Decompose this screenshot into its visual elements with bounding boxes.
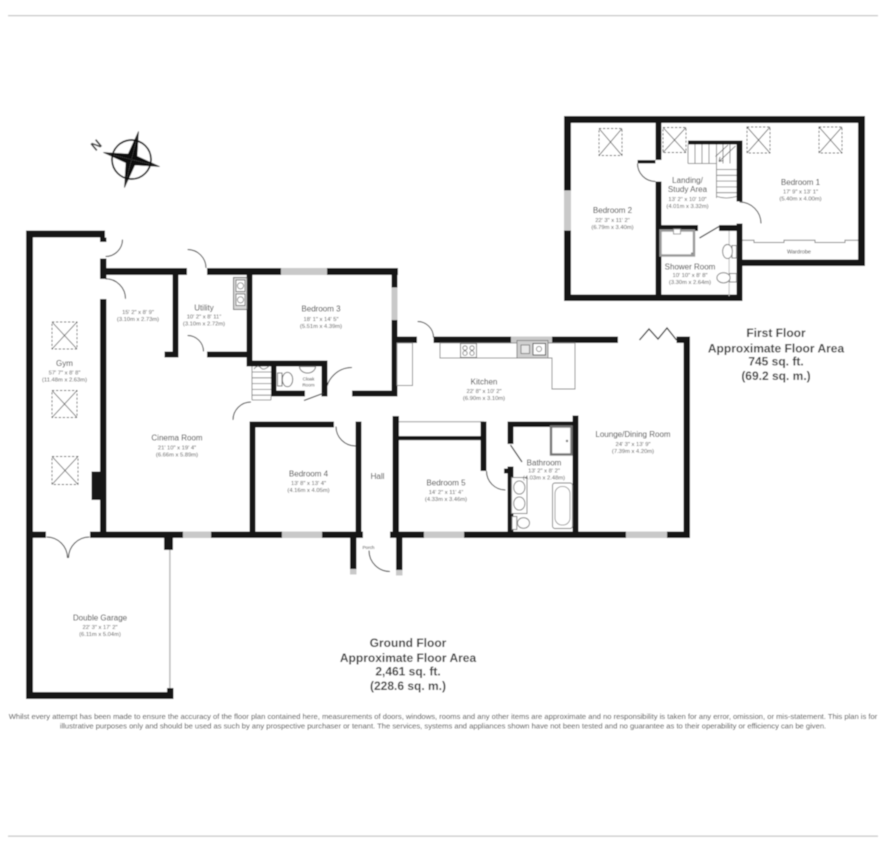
svg-text:Shower Room: Shower Room [665, 263, 716, 272]
svg-text:24' 3" x 13' 9": 24' 3" x 13' 9" [615, 442, 650, 448]
svg-text:Bedroom 1: Bedroom 1 [781, 178, 821, 187]
svg-text:First Floor: First Floor [746, 326, 806, 340]
svg-text:13' 2" x 8' 2": 13' 2" x 8' 2" [528, 469, 560, 475]
svg-text:14' 2" x 11' 4": 14' 2" x 11' 4" [429, 490, 464, 496]
svg-text:(3.10m x 2.73m): (3.10m x 2.73m) [117, 317, 159, 323]
svg-text:21' 10" x 19' 4": 21' 10" x 19' 4" [158, 446, 196, 452]
svg-text:Bedroom 3: Bedroom 3 [301, 305, 341, 314]
svg-text:Utility: Utility [194, 304, 214, 313]
svg-text:18' 1" x 14' 5": 18' 1" x 14' 5" [303, 317, 338, 323]
svg-text:745 sq. ft.: 745 sq. ft. [748, 355, 803, 369]
svg-text:15' 2" x 8' 9": 15' 2" x 8' 9" [122, 310, 154, 316]
svg-text:(6.79m x 3.40m): (6.79m x 3.40m) [591, 225, 633, 231]
svg-text:22' 3" x 11' 2": 22' 3" x 11' 2" [595, 218, 630, 224]
svg-text:Hall: Hall [371, 472, 385, 481]
svg-text:Landing/: Landing/ [672, 176, 703, 185]
svg-text:illustrative purposes only and: illustrative purposes only and should be… [60, 722, 826, 731]
svg-text:Porch: Porch [362, 545, 374, 550]
svg-text:2,461 sq. ft.: 2,461 sq. ft. [375, 665, 440, 679]
svg-text:(3.10m x 2.72m): (3.10m x 2.72m) [183, 322, 225, 328]
svg-text:Ground Floor: Ground Floor [370, 636, 447, 650]
svg-text:(6.90m x 3.10m): (6.90m x 3.10m) [463, 396, 505, 402]
svg-text:22' 8" x 10' 2": 22' 8" x 10' 2" [466, 389, 501, 395]
svg-text:Study Area: Study Area [668, 185, 708, 194]
svg-text:Room: Room [302, 383, 314, 388]
svg-text:10' 2" x 8' 11": 10' 2" x 8' 11" [187, 315, 222, 321]
svg-text:Approximate Floor Area: Approximate Floor Area [708, 341, 845, 355]
svg-text:(6.66m x 5.89m): (6.66m x 5.89m) [156, 453, 198, 459]
svg-text:(4.33m x 3.46m): (4.33m x 3.46m) [425, 497, 467, 503]
svg-text:Kitchen: Kitchen [471, 378, 498, 387]
svg-text:17' 9" x 13' 1": 17' 9" x 13' 1" [783, 190, 818, 196]
svg-text:Gym: Gym [56, 359, 73, 368]
svg-text:Cinema Room: Cinema Room [151, 434, 202, 443]
svg-text:(228.6 sq. m.): (228.6 sq. m.) [370, 679, 446, 693]
svg-text:Lounge/Dining Room: Lounge/Dining Room [595, 430, 670, 439]
svg-text:(7.39m x 4.20m): (7.39m x 4.20m) [612, 449, 654, 455]
svg-text:Double Garage: Double Garage [73, 614, 128, 623]
svg-text:(5.51m x 4.39m): (5.51m x 4.39m) [300, 324, 342, 330]
svg-text:57' 7" x 8' 8": 57' 7" x 8' 8" [49, 371, 81, 377]
svg-text:(69.2 sq. m.): (69.2 sq. m.) [741, 369, 810, 383]
svg-text:(3.30m x 2.64m): (3.30m x 2.64m) [669, 280, 711, 286]
svg-text:(4.03m x 2.48m): (4.03m x 2.48m) [523, 476, 565, 482]
svg-text:(4.16m x 4.05m): (4.16m x 4.05m) [287, 488, 329, 494]
svg-text:(6.11m x 5.04m): (6.11m x 5.04m) [79, 632, 121, 638]
svg-text:(4.01m x 3.32m): (4.01m x 3.32m) [666, 204, 708, 210]
svg-text:Whilst every attempt has been: Whilst every attempt has been made to en… [9, 712, 878, 721]
svg-text:Approximate Floor Area: Approximate Floor Area [340, 651, 477, 665]
svg-text:22' 3" x 17' 2": 22' 3" x 17' 2" [82, 625, 117, 631]
svg-text:(11.48m x 2.63m): (11.48m x 2.63m) [42, 378, 87, 384]
svg-text:13' 2" x 10' 10": 13' 2" x 10' 10" [668, 197, 706, 203]
svg-text:Bathroom: Bathroom [527, 459, 562, 468]
svg-text:(5.40m x 4.00m): (5.40m x 4.00m) [779, 197, 821, 203]
svg-text:10' 10" x 8' 8": 10' 10" x 8' 8" [672, 273, 707, 279]
svg-text:Wardrobe: Wardrobe [787, 250, 811, 256]
svg-text:Cloak: Cloak [303, 377, 315, 382]
svg-text:Bedroom 2: Bedroom 2 [593, 206, 633, 215]
svg-text:13' 8" x 13' 4": 13' 8" x 13' 4" [291, 481, 326, 487]
svg-text:Bedroom 4: Bedroom 4 [289, 470, 329, 479]
svg-text:Bedroom 5: Bedroom 5 [426, 479, 466, 488]
